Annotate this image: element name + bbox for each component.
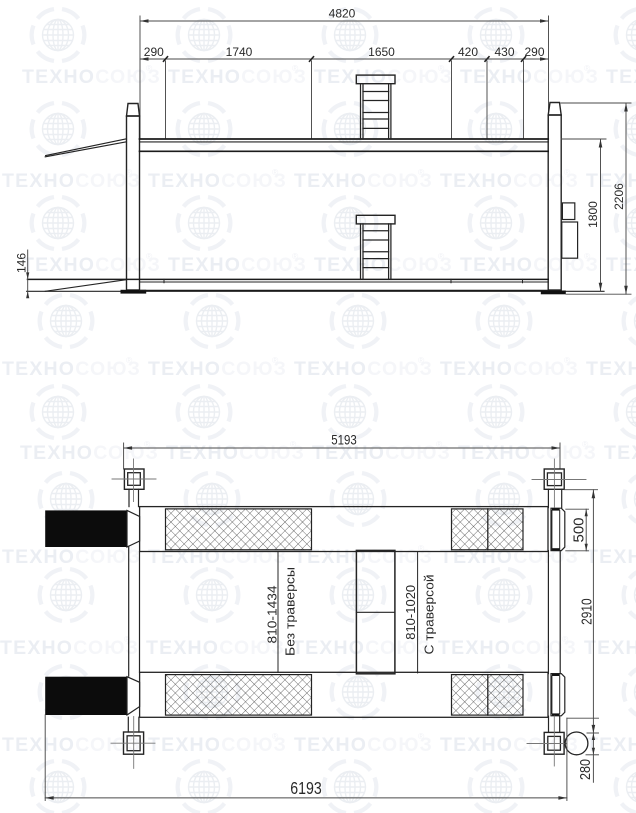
svg-text:®: ® — [584, 251, 591, 261]
svg-text:500: 500 — [571, 517, 588, 542]
svg-text:®: ® — [146, 63, 153, 73]
svg-text:ТЕХНОСОЮЗ: ТЕХНОСОЮЗ — [460, 254, 599, 276]
svg-text:®: ® — [564, 167, 571, 177]
svg-text:ТЕХНОСОЮЗ: ТЕХНОСОЮЗ — [314, 66, 453, 88]
svg-text:®: ® — [146, 251, 153, 261]
svg-text:146: 146 — [14, 253, 28, 273]
svg-text:®: ® — [144, 439, 151, 449]
svg-text:ТЕХНОСОЮЗ: ТЕХНОСОЮЗ — [168, 66, 307, 88]
svg-text:1740: 1740 — [226, 45, 253, 59]
svg-text:ТЕХНОСОЮЗ: ТЕХНОСОЮЗ — [294, 546, 433, 568]
svg-text:4820: 4820 — [329, 7, 356, 21]
svg-text:ТЕХНОСОЮЗ: ТЕХНОСОЮЗ — [440, 170, 579, 192]
svg-text:ТЕХНОСОЮЗ: ТЕХНОСОЮЗ — [148, 358, 287, 380]
svg-text:®: ® — [564, 355, 571, 365]
svg-text:®: ® — [562, 634, 569, 644]
svg-text:ТЕХНОСОЮЗ: ТЕХНОСОЮЗ — [294, 358, 433, 380]
svg-text:®: ® — [126, 355, 133, 365]
svg-text:®: ® — [418, 167, 425, 177]
svg-text:Без траверсы: Без траверсы — [282, 567, 297, 656]
svg-text:®: ® — [436, 439, 443, 449]
svg-text:®: ® — [438, 251, 445, 261]
svg-text:ТЕХНОСОЮЗ: ТЕХНОСОЮЗ — [440, 358, 579, 380]
svg-text:2206: 2206 — [612, 183, 626, 210]
svg-text:ТЕХНОСОЮЗ: ТЕХНОСОЮЗ — [604, 442, 636, 464]
svg-text:ТЕХНОСОЮЗ: ТЕХНОСОЮЗ — [294, 170, 433, 192]
svg-text:ТЕХНОСОЮЗ: ТЕХНОСОЮЗ — [458, 442, 597, 464]
svg-text:®: ® — [418, 731, 425, 741]
svg-text:ТЕХНОСОЮЗ: ТЕХНОСОЮЗ — [2, 358, 141, 380]
svg-text:ТЕХНОСОЮЗ: ТЕХНОСОЮЗ — [584, 637, 636, 659]
svg-text:®: ® — [124, 634, 131, 644]
svg-text:ТЕХНОСОЮЗ: ТЕХНОСОЮЗ — [438, 637, 577, 659]
svg-text:280: 280 — [577, 759, 594, 780]
svg-text:®: ® — [292, 63, 299, 73]
svg-text:ТЕХНОСОЮЗ: ТЕХНОСОЮЗ — [20, 442, 159, 464]
svg-text:ТЕХНОСОЮЗ: ТЕХНОСОЮЗ — [294, 734, 433, 756]
svg-text:ТЕХНОСОЮЗ: ТЕХНОСОЮЗ — [0, 637, 139, 659]
svg-text:®: ® — [438, 63, 445, 73]
svg-text:ТЕХНОСОЮЗ: ТЕХНОСОЮЗ — [314, 254, 453, 276]
svg-text:420: 420 — [458, 45, 478, 59]
svg-text:6193: 6193 — [290, 778, 322, 798]
svg-text:ТЕХНОСОЮЗ: ТЕХНОСОЮЗ — [440, 734, 579, 756]
svg-text:ТЕХНОСОЮЗ: ТЕХНОСОЮЗ — [148, 734, 287, 756]
svg-text:®: ® — [272, 355, 279, 365]
svg-text:®: ® — [292, 251, 299, 261]
svg-text:ТЕХНОСОЮЗ: ТЕХНОСОЮЗ — [2, 170, 141, 192]
svg-text:®: ® — [582, 439, 589, 449]
svg-text:810-1020: 810-1020 — [403, 585, 418, 640]
svg-text:ТЕХНОСОЮЗ: ТЕХНОСОЮЗ — [22, 254, 161, 276]
svg-text:5193: 5193 — [331, 432, 357, 448]
svg-text:®: ® — [272, 167, 279, 177]
svg-text:®: ® — [272, 731, 279, 741]
svg-text:290: 290 — [524, 45, 544, 59]
svg-text:ТЕХНОСОЮЗ: ТЕХНОСОЮЗ — [606, 254, 636, 276]
svg-text:С траверсой: С траверсой — [422, 575, 437, 655]
svg-text:ТЕХНОСОЮЗ: ТЕХНОСОЮЗ — [2, 546, 141, 568]
svg-text:2910: 2910 — [579, 598, 596, 625]
svg-text:®: ® — [584, 63, 591, 73]
svg-text:810-1434: 810-1434 — [264, 586, 279, 644]
svg-text:®: ® — [290, 439, 297, 449]
svg-text:1650: 1650 — [368, 45, 395, 59]
svg-text:ТЕХНОСОЮЗ: ТЕХНОСОЮЗ — [2, 734, 141, 756]
svg-text:ТЕХНОСОЮЗ: ТЕХНОСОЮЗ — [586, 358, 636, 380]
svg-text:430: 430 — [494, 45, 514, 59]
svg-text:ТЕХНОСОЮЗ: ТЕХНОСОЮЗ — [166, 442, 305, 464]
svg-text:1800: 1800 — [586, 201, 600, 228]
svg-text:290: 290 — [144, 45, 164, 59]
svg-text:ТЕХНОСОЮЗ: ТЕХНОСОЮЗ — [168, 254, 307, 276]
svg-text:ТЕХНОСОЮЗ: ТЕХНОСОЮЗ — [460, 66, 599, 88]
svg-text:ТЕХНОСОЮЗ: ТЕХНОСОЮЗ — [148, 170, 287, 192]
svg-text:®: ® — [418, 355, 425, 365]
svg-text:ТЕХНОСОЮЗ: ТЕХНОСОЮЗ — [606, 66, 636, 88]
